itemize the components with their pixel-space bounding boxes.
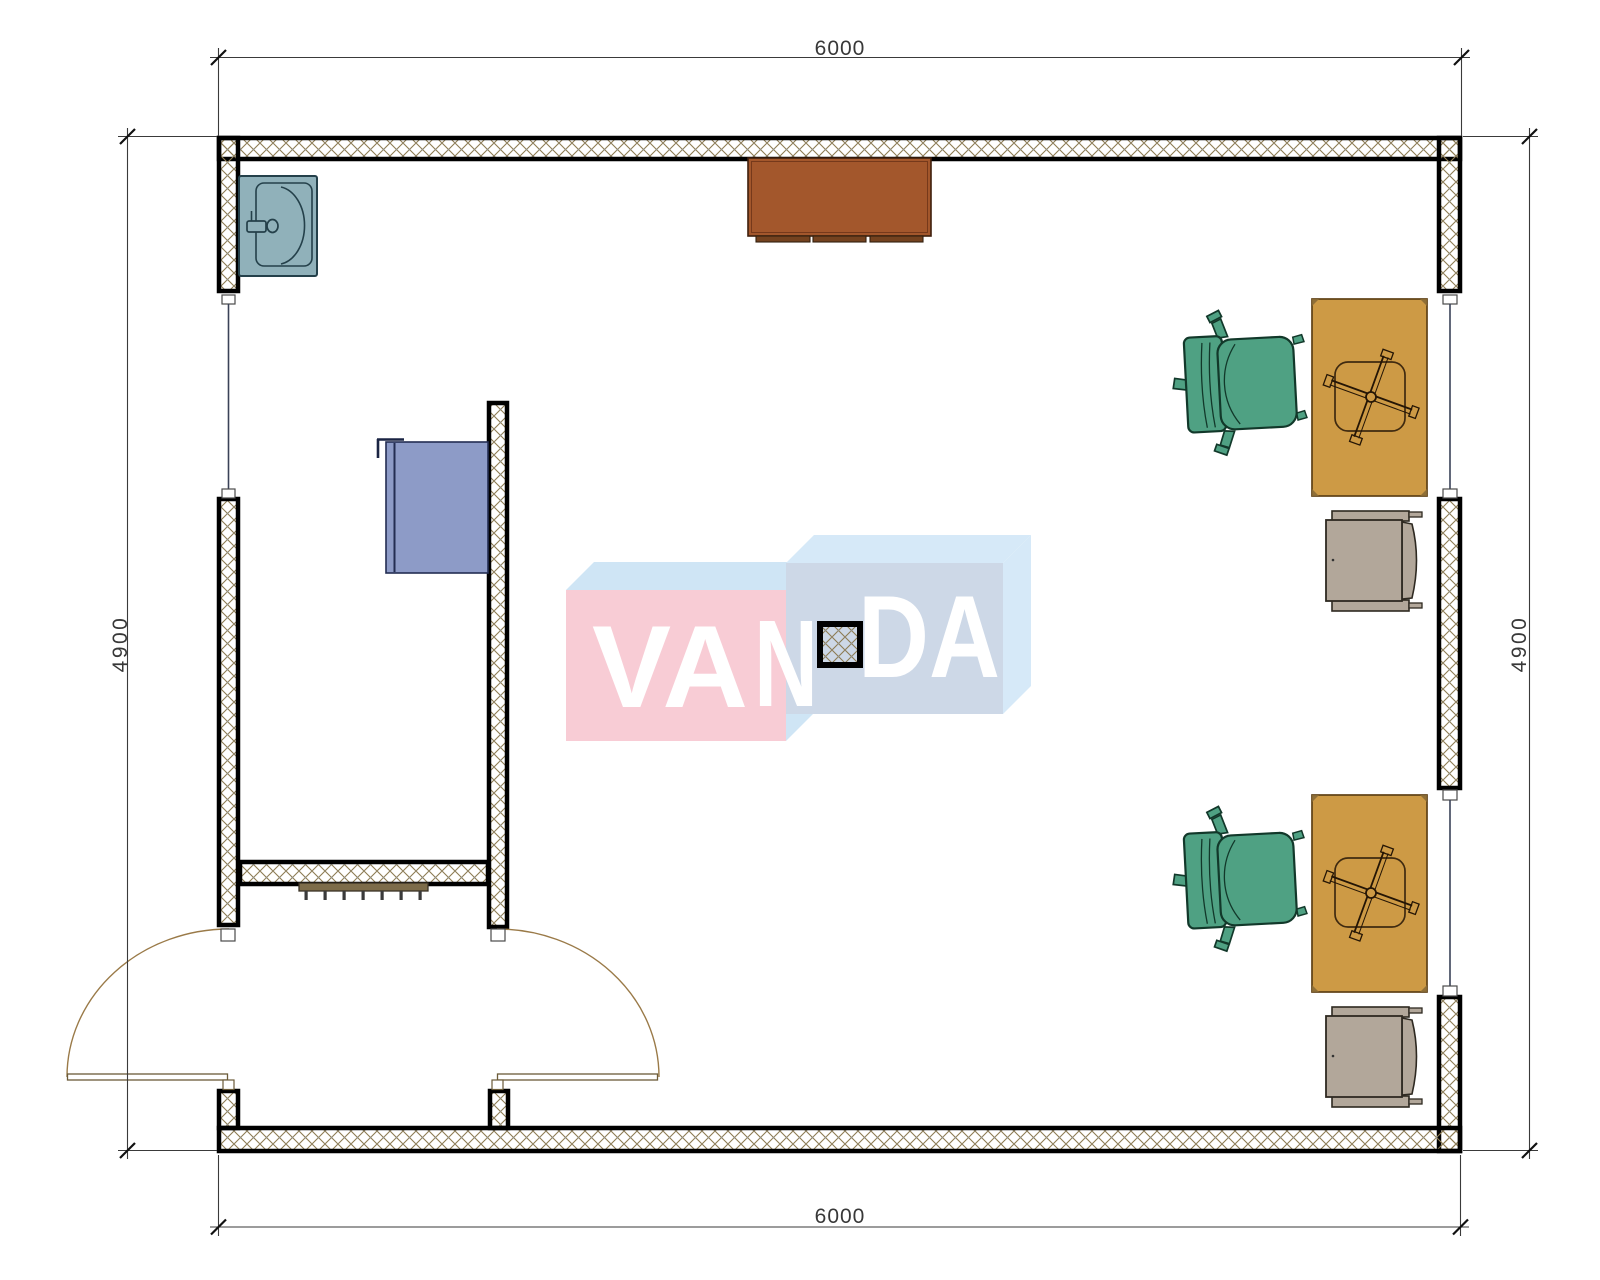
svg-text:4900: 4900 [109,616,132,673]
svg-text:6000: 6000 [815,1205,866,1228]
svg-text:6000: 6000 [815,37,866,60]
svg-text:VA: VA [592,601,748,732]
svg-text:N: N [754,596,818,733]
svg-text:DA: DA [858,571,1000,702]
svg-text:4900: 4900 [1508,616,1531,673]
